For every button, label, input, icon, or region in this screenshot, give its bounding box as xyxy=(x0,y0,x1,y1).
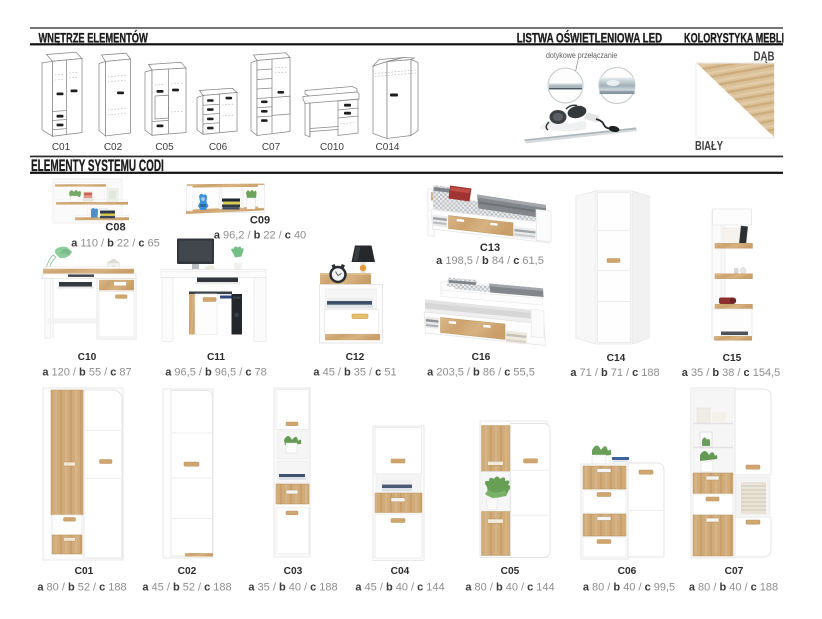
svg-text:C07: C07 xyxy=(262,142,281,153)
svg-text:C09: C09 xyxy=(250,215,270,227)
svg-text:KOLORYSTYKA MEBLI: KOLORYSTYKA MEBLI xyxy=(684,31,784,46)
svg-text:C02: C02 xyxy=(178,566,197,577)
svg-text:a 80 / b 52 / c 188: a 80 / b 52 / c 188 xyxy=(37,582,126,594)
svg-text:a 80 / b 40 / c 144: a 80 / b 40 / c 144 xyxy=(465,582,554,594)
svg-text:BIAŁY: BIAŁY xyxy=(695,140,723,154)
svg-text:C014: C014 xyxy=(376,142,400,153)
svg-text:a 80 / b 40 / c 99,5: a 80 / b 40 / c 99,5 xyxy=(583,582,675,594)
svg-text:DĄB: DĄB xyxy=(753,49,774,64)
svg-text:C05: C05 xyxy=(501,566,520,577)
svg-text:C05: C05 xyxy=(155,142,174,153)
svg-text:a 45 / b 35 / c 51: a 45 / b 35 / c 51 xyxy=(313,367,396,379)
svg-text:C14: C14 xyxy=(607,353,626,364)
svg-text:WNĘTRZE ELEMENTÓW: WNĘTRZE ELEMENTÓW xyxy=(39,31,149,46)
svg-text:a 35 / b 38 / c 154,5: a 35 / b 38 / c 154,5 xyxy=(682,367,781,379)
svg-text:C010: C010 xyxy=(320,142,344,153)
svg-text:C06: C06 xyxy=(209,142,228,153)
svg-text:C01: C01 xyxy=(52,142,71,153)
svg-text:a 45 / b 40 / c 144: a 45 / b 40 / c 144 xyxy=(355,582,444,594)
svg-text:C07: C07 xyxy=(725,566,744,577)
svg-text:C16: C16 xyxy=(472,352,491,363)
svg-text:C13: C13 xyxy=(480,242,500,254)
svg-text:a 35 / b 40 / c 188: a 35 / b 40 / c 188 xyxy=(248,582,337,594)
svg-text:a 203,5 / b 86 / c 55,5: a 203,5 / b 86 / c 55,5 xyxy=(427,367,535,379)
svg-text:dotykowe przełączanie: dotykowe przełączanie xyxy=(546,50,617,60)
svg-text:a 120 / b 55 / c 87: a 120 / b 55 / c 87 xyxy=(42,367,131,379)
svg-text:C11: C11 xyxy=(207,352,225,363)
svg-text:C10: C10 xyxy=(78,352,97,363)
svg-text:a 110 / b 22 / c 65: a 110 / b 22 / c 65 xyxy=(71,238,160,250)
svg-text:a 96,2 / b 22 / c 40: a 96,2 / b 22 / c 40 xyxy=(214,230,306,242)
svg-text:a 71 / b 71 / c 188: a 71 / b 71 / c 188 xyxy=(570,367,659,379)
svg-text:C02: C02 xyxy=(104,142,123,153)
svg-text:C03: C03 xyxy=(284,566,303,577)
svg-text:C15: C15 xyxy=(723,353,742,364)
svg-text:C08: C08 xyxy=(105,222,125,234)
svg-text:a 96,5 / b 96,5 / c 78: a 96,5 / b 96,5 / c 78 xyxy=(165,367,267,379)
svg-text:a 198,5 / b 84 / c 61,5: a 198,5 / b 84 / c 61,5 xyxy=(436,255,544,267)
svg-text:C04: C04 xyxy=(391,566,410,577)
svg-text:C01: C01 xyxy=(75,566,94,577)
svg-text:a 80 / b 40 / c 188: a 80 / b 40 / c 188 xyxy=(689,582,778,594)
svg-text:C06: C06 xyxy=(618,566,637,577)
svg-text:LISTWA OŚWIETLENIOWA LED: LISTWA OŚWIETLENIOWA LED xyxy=(517,29,663,46)
svg-text:C12: C12 xyxy=(346,352,365,363)
svg-text:a 45 / b 52 / c 188: a 45 / b 52 / c 188 xyxy=(142,582,231,594)
